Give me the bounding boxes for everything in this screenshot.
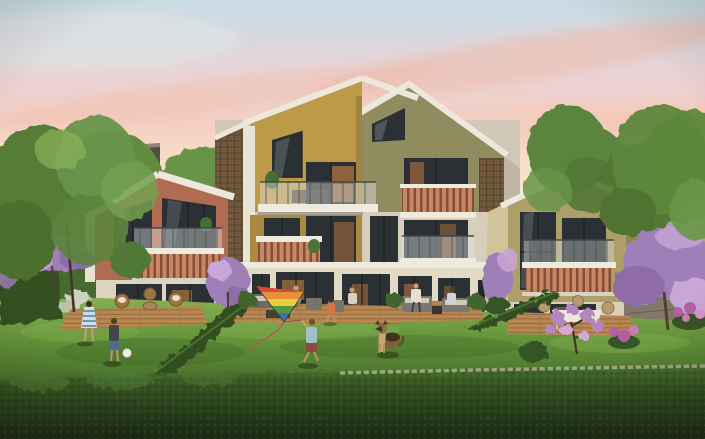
vignette — [0, 0, 705, 439]
architectural-rendering — [0, 0, 705, 439]
rendering-canvas — [0, 0, 705, 439]
